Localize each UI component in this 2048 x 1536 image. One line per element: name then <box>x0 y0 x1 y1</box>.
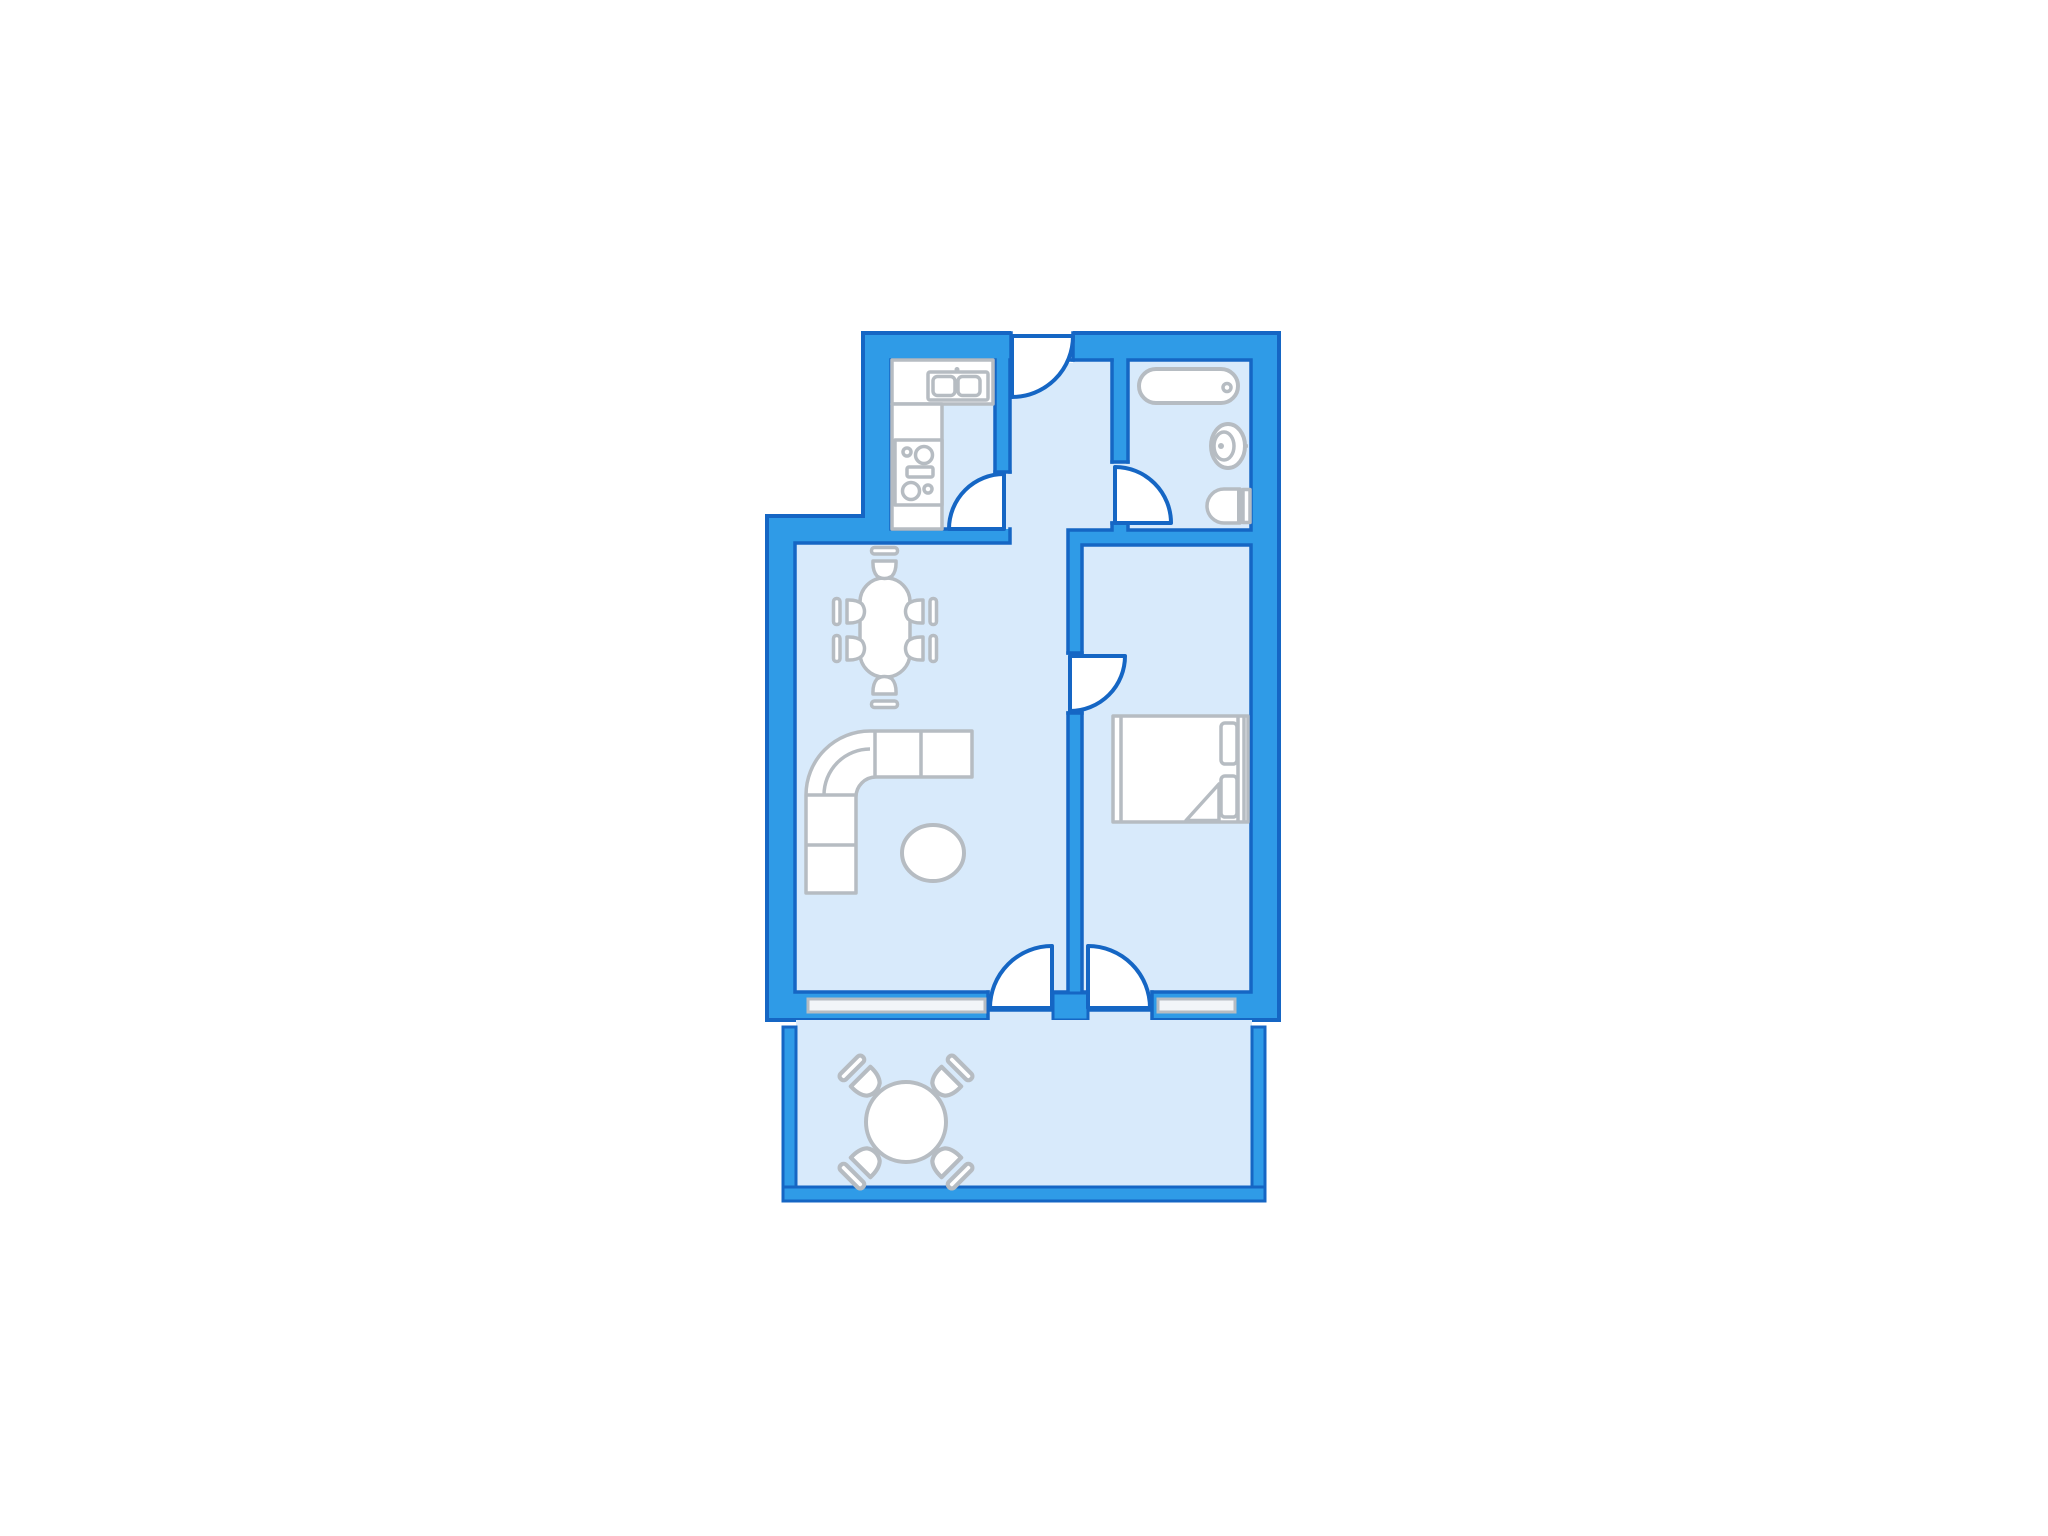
dining-chair-left-2 <box>834 636 865 662</box>
dining-table <box>860 578 910 677</box>
stove-control-panel <box>907 467 933 477</box>
balcony-wall-left <box>783 1027 796 1194</box>
bed-pillow-1 <box>1221 723 1237 764</box>
stove-burner-small-2 <box>924 485 932 493</box>
stove-burner-small-1 <box>903 448 911 456</box>
living-room-window <box>808 999 985 1012</box>
dining-chair-right-1 <box>906 599 937 625</box>
sink-basin-left <box>933 377 955 396</box>
stove-burner-large-2 <box>903 483 920 500</box>
sink-faucet-icon <box>955 367 960 372</box>
sink-basin-right <box>958 377 980 396</box>
balcony-door-pier <box>1053 993 1088 1020</box>
coffee-table <box>902 825 964 881</box>
stove-burner-large-1 <box>916 447 933 464</box>
balcony-wall-bottom <box>783 1187 1265 1201</box>
balcony-wall-right <box>1252 1027 1265 1194</box>
toilet-tank <box>1243 490 1250 523</box>
dining-chair-top <box>872 548 898 579</box>
bedroom-window <box>1158 999 1235 1012</box>
toilet-bowl <box>1207 489 1240 523</box>
dining-chair-bottom <box>872 677 898 708</box>
floor-plan-page <box>0 0 2048 1536</box>
dining-chair-right-2 <box>906 636 937 662</box>
bedroom-furniture <box>1113 716 1248 822</box>
wash-basin-drain <box>1218 443 1224 449</box>
dining-chair-left-1 <box>834 599 865 625</box>
balcony-table <box>866 1082 946 1162</box>
hallway-living-opening <box>1010 529 1068 545</box>
bed-pillow-2 <box>1221 776 1237 817</box>
floor-plan-drawing <box>0 0 2048 1536</box>
bathtub-drain <box>1223 384 1231 392</box>
